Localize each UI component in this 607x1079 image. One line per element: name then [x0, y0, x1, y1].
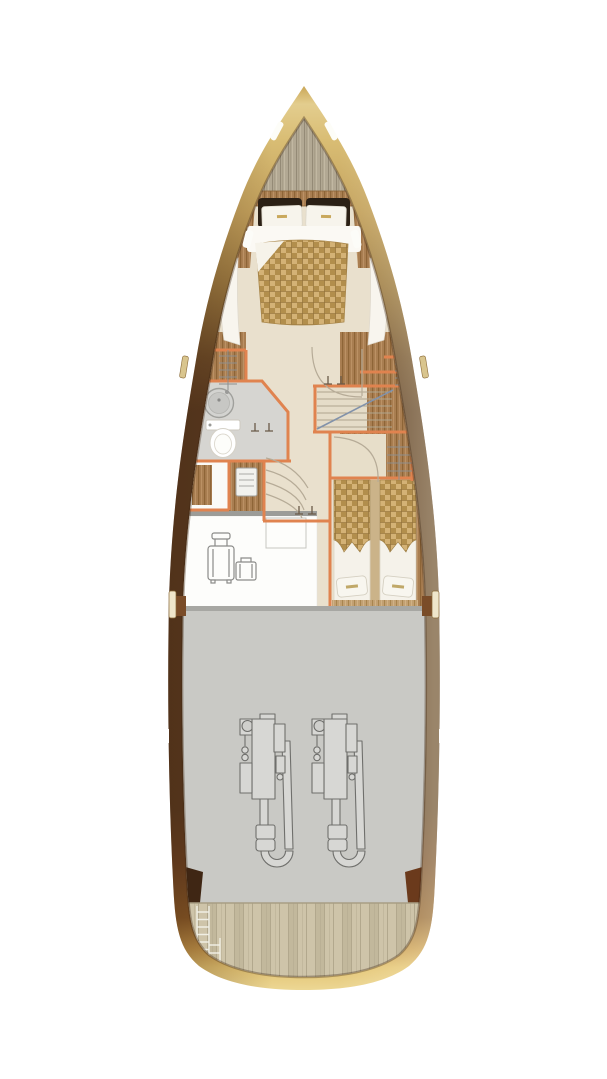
hull-notch — [163, 729, 169, 743]
window-icon — [419, 356, 428, 379]
yacht-deck-plan — [0, 0, 607, 1079]
window-icon — [169, 591, 176, 618]
hull-notch — [439, 729, 445, 743]
luggage-room — [179, 511, 317, 607]
sink-icon — [205, 389, 234, 418]
window-icon — [432, 591, 439, 618]
interior — [160, 100, 450, 990]
twin-bed-starboard — [380, 480, 416, 602]
locker-icon — [236, 468, 257, 496]
twin-bed-port — [334, 480, 370, 602]
window-icon — [179, 356, 188, 379]
engine-room — [176, 606, 432, 903]
